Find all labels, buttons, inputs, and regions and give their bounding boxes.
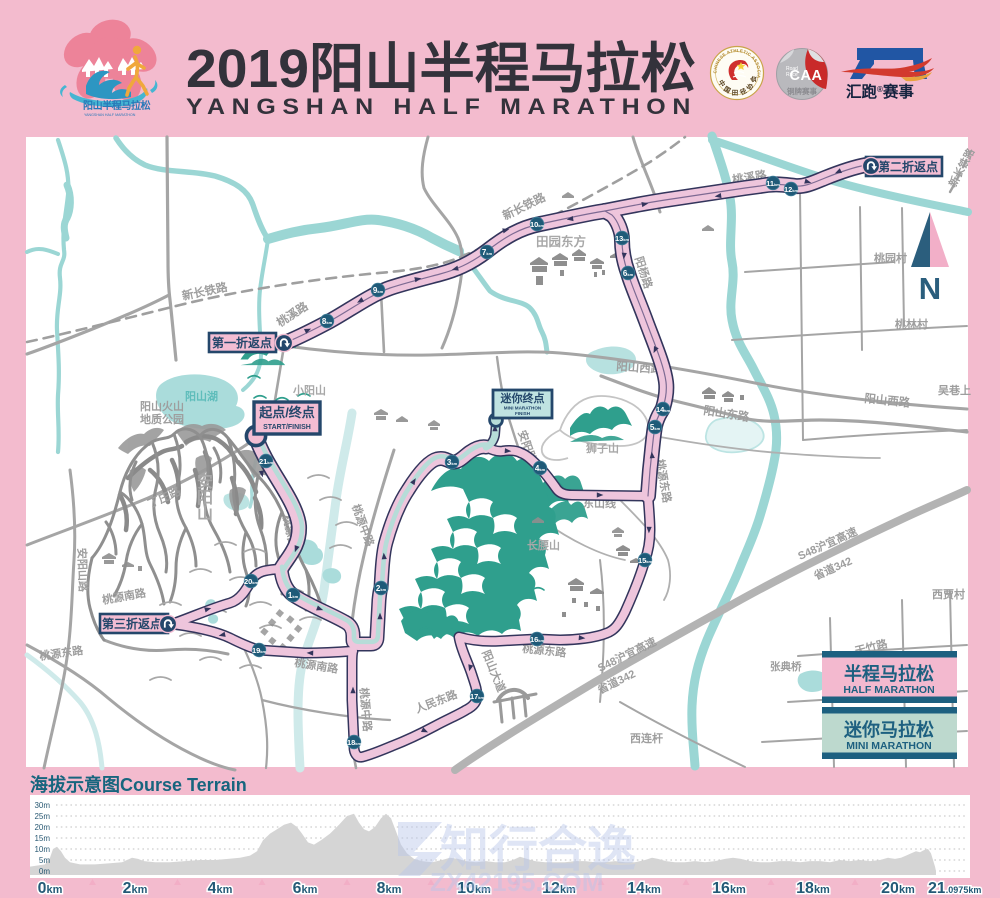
svg-text:阳山湖: 阳山湖 <box>185 389 218 403</box>
svg-text:桃林村: 桃林村 <box>895 317 928 331</box>
svg-text:阳山半程马拉松: 阳山半程马拉松 <box>83 99 151 112</box>
svg-text:30m: 30m <box>34 801 50 810</box>
svg-text:5m: 5m <box>39 856 50 865</box>
svg-text:第三折返点: 第三折返点 <box>102 616 162 631</box>
svg-text:MINI MARATHON: MINI MARATHON <box>504 406 542 411</box>
svg-text:田园东方: 田园东方 <box>536 234 586 249</box>
svg-text:N: N <box>919 271 941 306</box>
svg-text:阳山火山: 阳山火山 <box>140 399 184 413</box>
svg-text:0m: 0m <box>39 867 50 876</box>
svg-text:2019阳山半程马拉松: 2019阳山半程马拉松 <box>186 39 696 99</box>
svg-text:起点/终点: 起点/终点 <box>258 405 315 420</box>
svg-text:海拔示意图Course Terrain: 海拔示意图Course Terrain <box>30 774 247 795</box>
svg-text:YANGSHAN HALF MARATHON: YANGSHAN HALF MARATHON <box>84 113 136 117</box>
svg-text:西贾村: 西贾村 <box>932 587 965 601</box>
svg-text:25m: 25m <box>34 812 50 821</box>
svg-text:小阳山: 小阳山 <box>292 383 326 397</box>
svg-text:迷你终点: 迷你终点 <box>500 391 545 405</box>
svg-text:吴巷上: 吴巷上 <box>938 383 971 397</box>
svg-text:15m: 15m <box>34 834 50 843</box>
svg-text:西连杆: 西连杆 <box>630 731 663 745</box>
svg-text:狮子山: 狮子山 <box>585 441 619 455</box>
svg-text:半程马拉松: 半程马拉松 <box>844 663 934 684</box>
svg-text:张典桥: 张典桥 <box>770 660 802 673</box>
svg-text:铜牌赛事: 铜牌赛事 <box>787 86 817 96</box>
svg-text:Race: Race <box>786 72 798 78</box>
svg-text:桃园村: 桃园村 <box>874 251 907 265</box>
svg-text:FINISH: FINISH <box>515 411 531 416</box>
svg-text:MINI MARATHON: MINI MARATHON <box>846 740 932 752</box>
svg-text:20m: 20m <box>34 823 50 832</box>
svg-text:HALF MARATHON: HALF MARATHON <box>843 684 934 696</box>
svg-text:第二折返点: 第二折返点 <box>878 159 938 174</box>
svg-text:ZX42195.COM: ZX42195.COM <box>430 867 603 897</box>
svg-text:安阳山: 安阳山 <box>197 472 213 523</box>
svg-text:第一折返点: 第一折返点 <box>212 335 272 350</box>
svg-text:迷你马拉松: 迷你马拉松 <box>843 719 934 740</box>
svg-text:YANGSHAN HALF MARATHON: YANGSHAN HALF MARATHON <box>186 94 697 119</box>
svg-text:START/FINISH: START/FINISH <box>263 424 311 431</box>
svg-text:地质公园: 地质公园 <box>140 412 184 426</box>
svg-text:长腰山: 长腰山 <box>527 538 560 552</box>
svg-text:10m: 10m <box>34 845 50 854</box>
